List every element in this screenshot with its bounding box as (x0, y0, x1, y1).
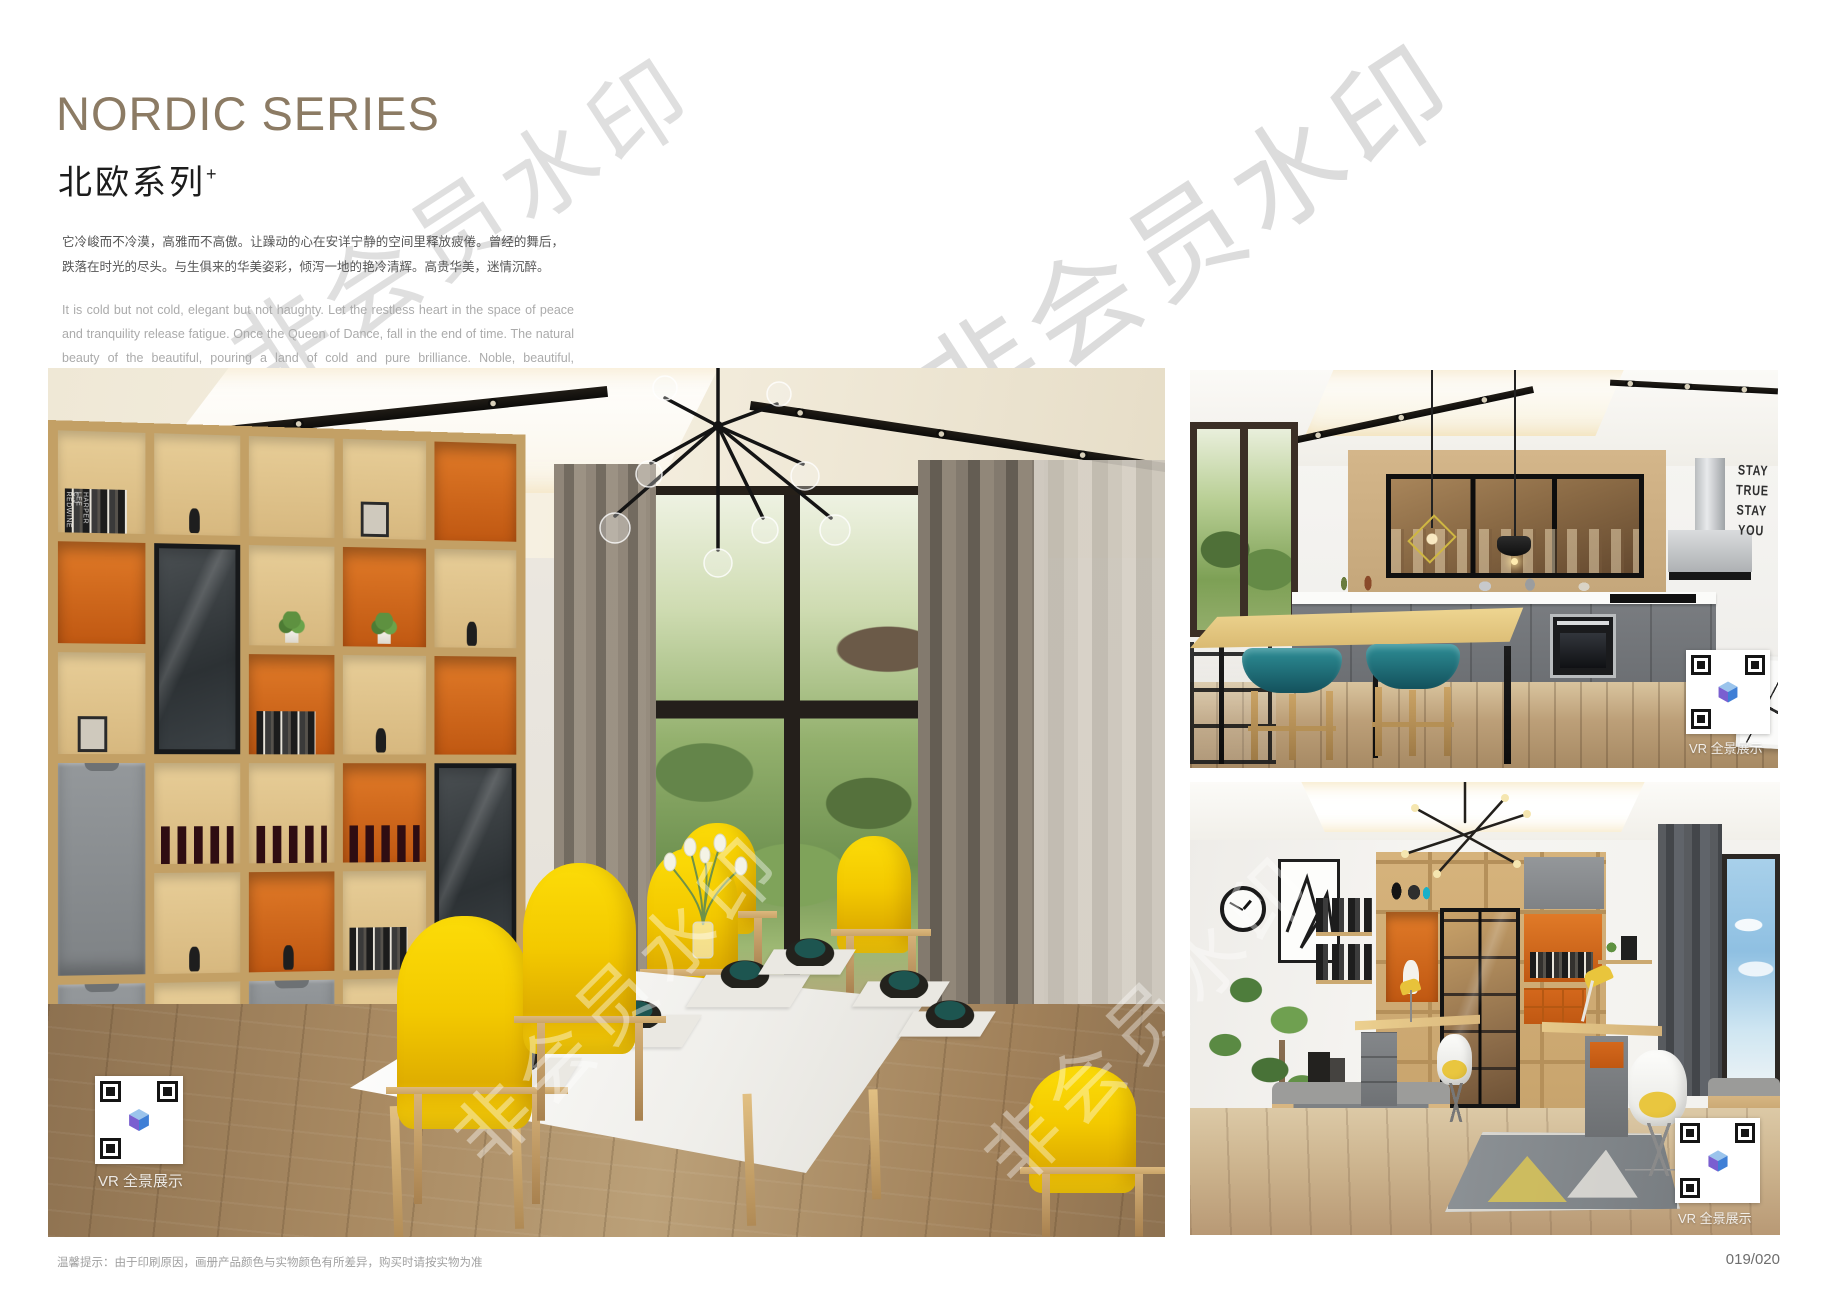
bar-stool (1242, 648, 1342, 760)
shelf-cell-orange (249, 654, 334, 754)
wall-shelf-decor (1598, 918, 1652, 964)
wall-sign-line: STAY (1734, 459, 1772, 480)
wine-bottles (349, 825, 419, 862)
shelf-cell (58, 652, 146, 754)
shelf-cell (154, 763, 240, 864)
book-spine: HARPER LEE (75, 492, 89, 533)
photo-kitchen: STAY TRUE STAY YOU VR 全景展示 (1190, 370, 1778, 768)
sputnik-chandelier (553, 368, 883, 608)
qr-finder-icon (1691, 655, 1711, 675)
page-subtitle: 北欧系列+ (58, 155, 574, 204)
vr-qr-code (1675, 1118, 1760, 1203)
study-window (1722, 854, 1780, 1084)
qr-finder-icon (157, 1081, 178, 1102)
shelf-cell-orange (58, 541, 146, 644)
shelf-cell (249, 436, 334, 538)
qr-finder-icon (1680, 1178, 1700, 1198)
sheer-curtain (1034, 460, 1165, 1045)
rod-chandelier (1385, 782, 1545, 887)
shelf-cell (154, 872, 240, 974)
wall-sign-line: YOU (1732, 519, 1770, 540)
photo-frame (361, 502, 389, 538)
shelf-cell (249, 545, 334, 646)
wall-sign-line: STAY (1733, 499, 1771, 520)
vase-decor (189, 947, 200, 972)
vr-qr-code (1686, 650, 1770, 734)
page-title: NORDIC SERIES (56, 86, 574, 141)
shelf-cell-orange (434, 656, 516, 755)
cooktop (1610, 594, 1696, 603)
kitchen-window (1190, 422, 1298, 637)
cube-logo-icon (1705, 1148, 1731, 1174)
qr-finder-icon (1680, 1123, 1700, 1143)
bar-stool (1366, 644, 1460, 756)
shelf-cell (154, 433, 240, 536)
pendant-light (1431, 370, 1433, 528)
qr-finder-icon (1735, 1123, 1755, 1143)
catalog-page: 非会员水印 非会员水印 NORDIC SERIES 北欧系列+ 它冷峻而不冷漠，… (0, 0, 1836, 1307)
shelf-cell-orange (249, 871, 334, 972)
photo-study-room: VR 全景展示 (1190, 782, 1780, 1235)
subtitle-plus: + (206, 164, 217, 184)
wall-sign-line: TRUE (1733, 479, 1771, 500)
shelf-cell (249, 763, 334, 863)
place-setting (766, 948, 848, 976)
vr-panorama-label: VR 全景展示 (1678, 1208, 1752, 1227)
header: NORDIC SERIES 北欧系列+ 它冷峻而不冷漠，高雅而不高傲。让躁动的心… (56, 86, 574, 394)
leaning-frames (1308, 1048, 1358, 1086)
vase-decor (189, 508, 200, 533)
page-number: 019/020 (1660, 1251, 1780, 1268)
qr-finder-icon (100, 1081, 121, 1102)
qr-finder-icon (1745, 655, 1765, 675)
built-in-oven (1550, 614, 1616, 678)
photo-frame (77, 716, 107, 752)
photo-dining-room: C.J REDWINEHARPER LEE (48, 368, 1165, 1237)
footer-note: 温馨提示：由于印刷原因，画册产品颜色与实物颜色有所差异，购买时请按实物为准 (57, 1254, 483, 1270)
vr-panorama-label: VR 全景展示 (1689, 738, 1763, 757)
pendant-light (1514, 370, 1516, 540)
vase-decor (376, 728, 386, 752)
books (256, 711, 315, 754)
wine-bottles (256, 826, 327, 864)
wall-shelf-books (1316, 898, 1372, 936)
dining-chair (1020, 1066, 1165, 1237)
shelf-cell (343, 655, 426, 754)
qr-finder-icon (100, 1138, 121, 1159)
vr-panorama-label: VR 全景展示 (98, 1170, 183, 1191)
qr-finder-icon (1691, 709, 1711, 729)
place-setting (696, 973, 800, 1009)
shelf-cell (434, 549, 516, 648)
shelf-cell: C.J REDWINEHARPER LEE (58, 430, 146, 534)
wall-clock (1220, 886, 1266, 932)
shelf-cell-orange (343, 763, 426, 862)
shelf-cell (343, 439, 426, 540)
intro-paragraph-cn: 它冷峻而不冷漠，高雅而不高傲。让躁动的心在安详宁静的空间里释放疲倦。曾经的舞后，… (62, 230, 564, 280)
vase-decor (467, 622, 477, 646)
wine-bottles (161, 826, 233, 864)
gray-cabinet-door (58, 763, 146, 976)
desk-lamp (1398, 980, 1424, 1024)
vr-qr-code (95, 1076, 183, 1164)
desk-lamp (1576, 968, 1618, 1024)
desk-chair (1432, 1034, 1480, 1122)
shelf-cell-orange (434, 442, 516, 542)
place-setting (906, 1010, 988, 1038)
potted-plant (278, 611, 305, 643)
wall-sign: STAY TRUE STAY YOU (1732, 459, 1772, 548)
glass-display-cabinet (154, 543, 240, 754)
vase-decor (283, 945, 293, 970)
potted-plant (371, 613, 397, 644)
subtitle-cn: 北欧系列 (58, 164, 206, 202)
counter-props (1320, 568, 1620, 594)
cube-logo-icon (1715, 679, 1740, 704)
dining-chair (514, 863, 666, 1121)
curtain-right (918, 460, 1048, 1045)
cube-logo-icon (126, 1107, 152, 1133)
books: C.J REDWINEHARPER LEE (65, 488, 126, 533)
shelf-cell-orange (343, 547, 426, 647)
